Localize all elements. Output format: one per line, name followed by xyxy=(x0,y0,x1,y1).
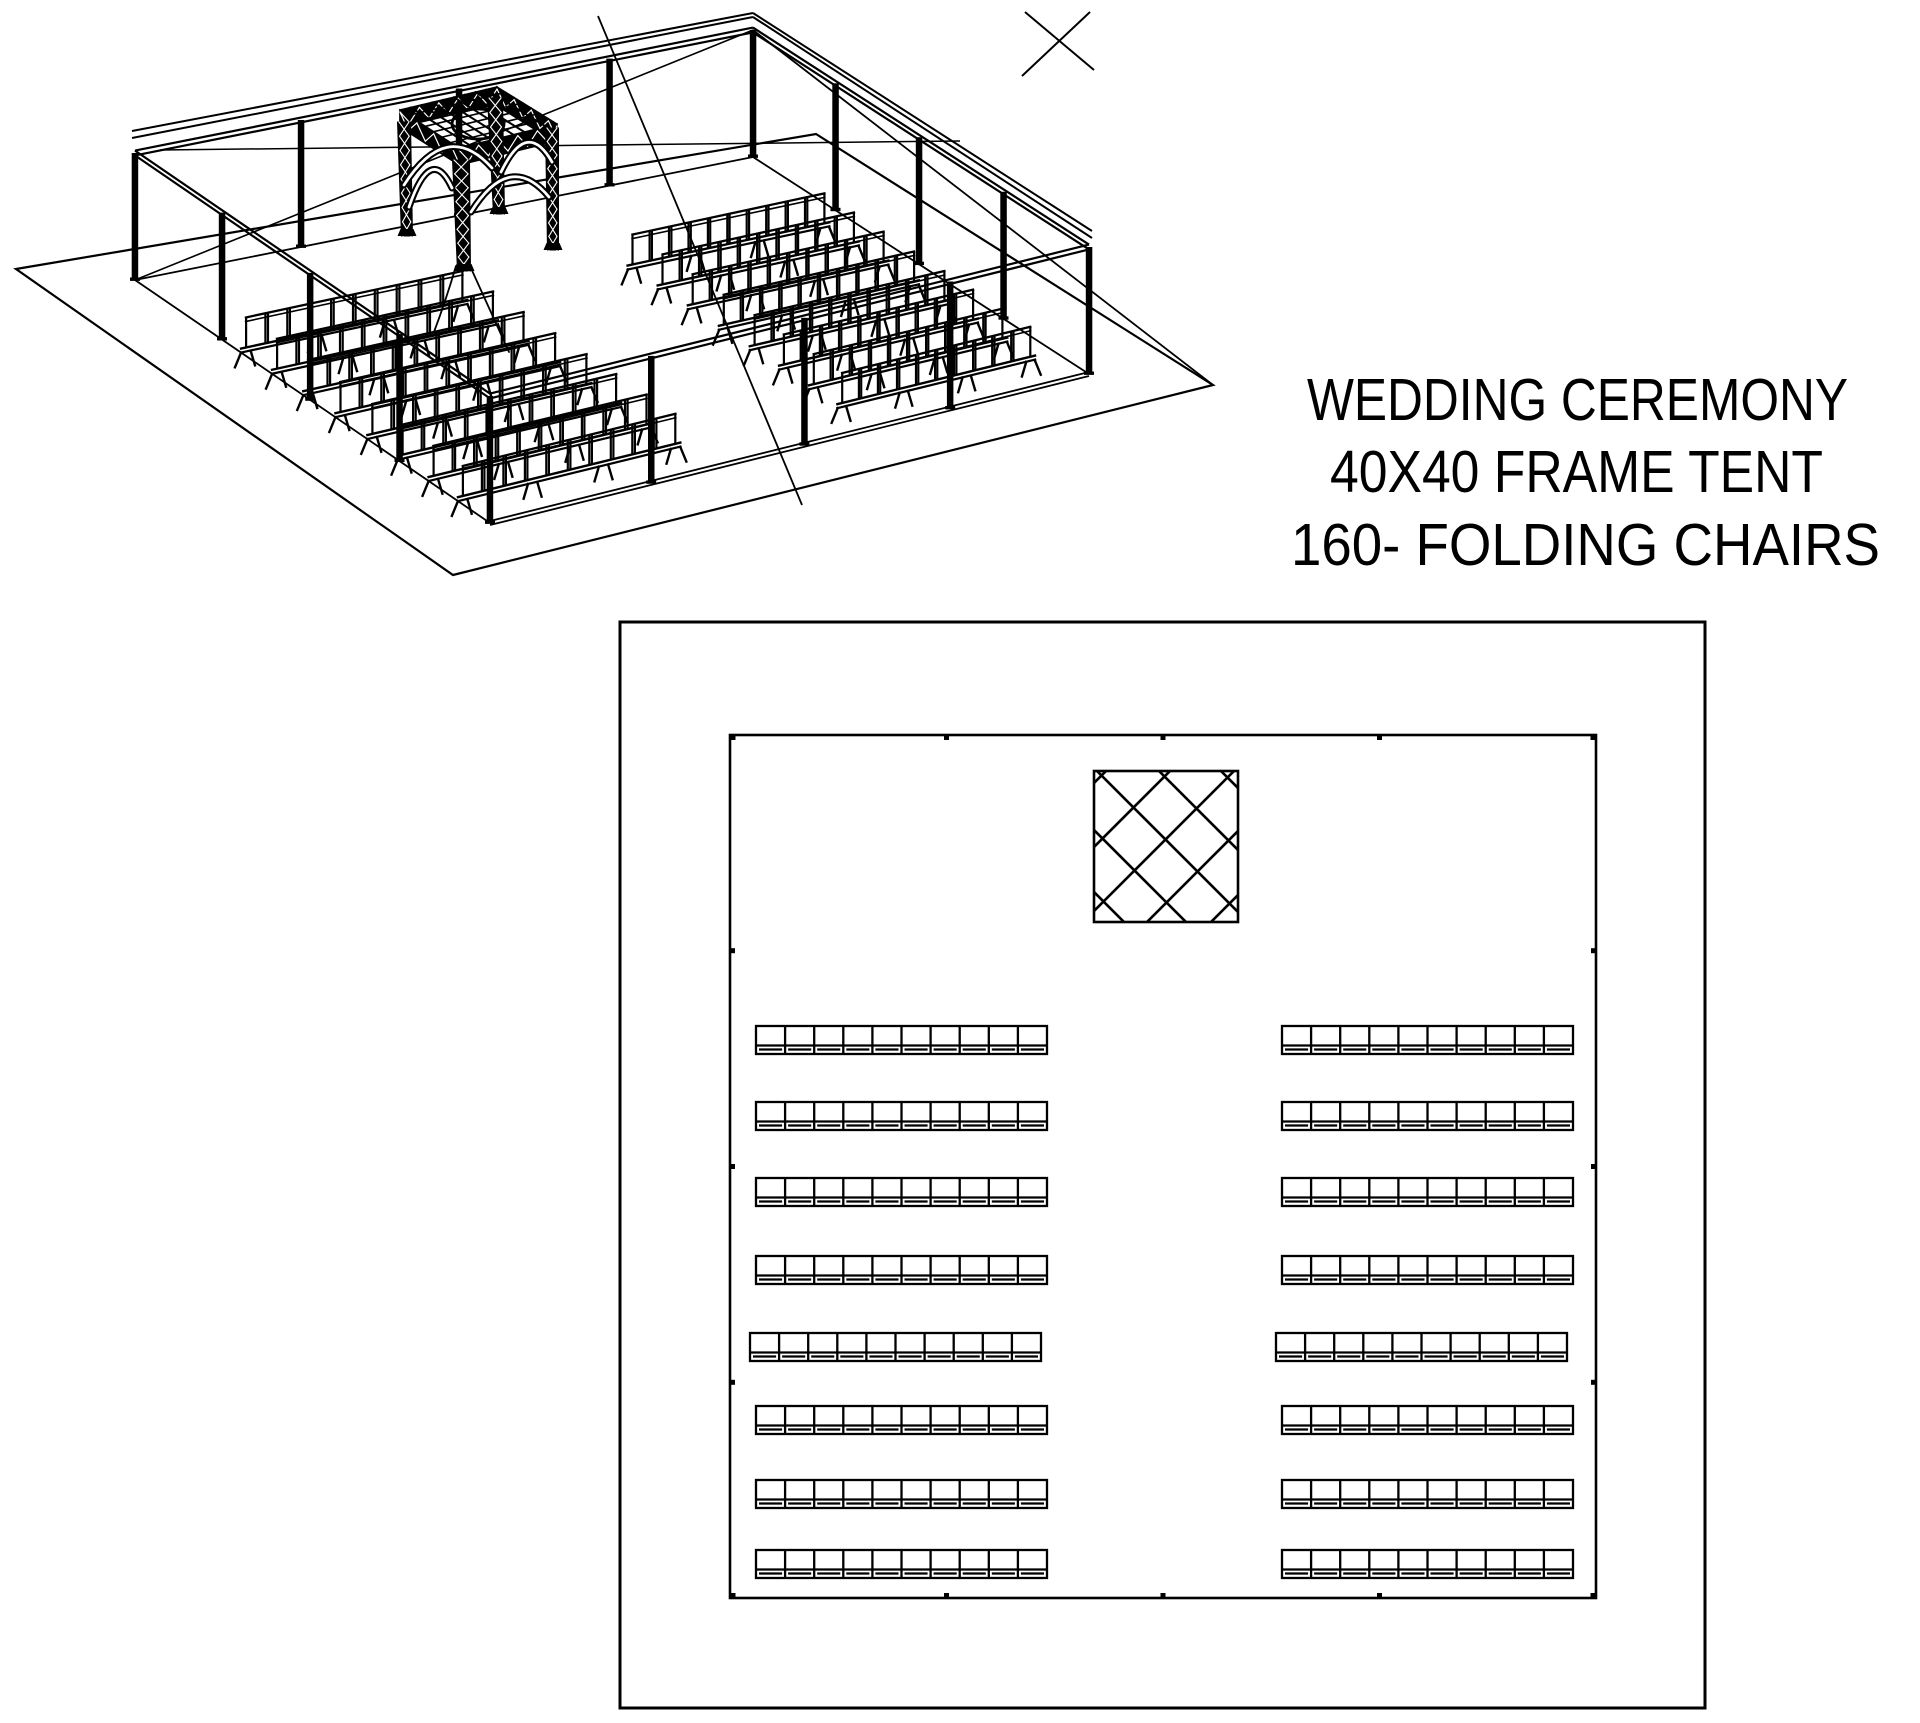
svg-text:40X40 FRAME TENT: 40X40 FRAME TENT xyxy=(1330,439,1823,505)
svg-text:WEDDING CEREMONY: WEDDING CEREMONY xyxy=(1307,367,1848,433)
svg-text:160- FOLDING CHAIRS: 160- FOLDING CHAIRS xyxy=(1291,512,1880,578)
